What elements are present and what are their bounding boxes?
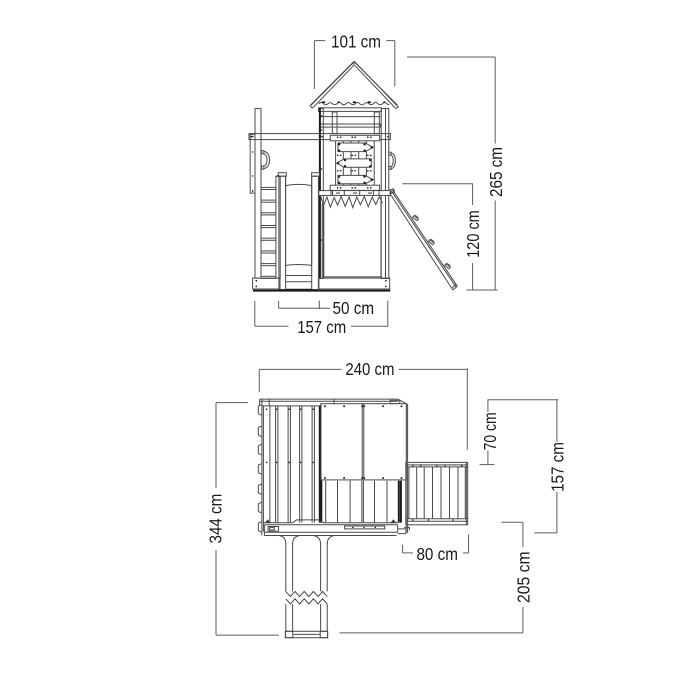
svg-text:205 cm: 205 cm [514,551,534,603]
svg-text:344 cm: 344 cm [206,494,226,544]
svg-text:50 cm: 50 cm [333,298,375,318]
svg-text:101 cm: 101 cm [331,32,381,52]
svg-text:80 cm: 80 cm [416,544,458,564]
svg-text:120 cm: 120 cm [463,210,483,258]
svg-text:70 cm: 70 cm [480,412,500,450]
svg-text:157 cm: 157 cm [548,442,568,492]
svg-text:265 cm: 265 cm [486,147,506,197]
svg-text:240 cm: 240 cm [345,359,394,379]
svg-text:157 cm: 157 cm [297,317,346,337]
